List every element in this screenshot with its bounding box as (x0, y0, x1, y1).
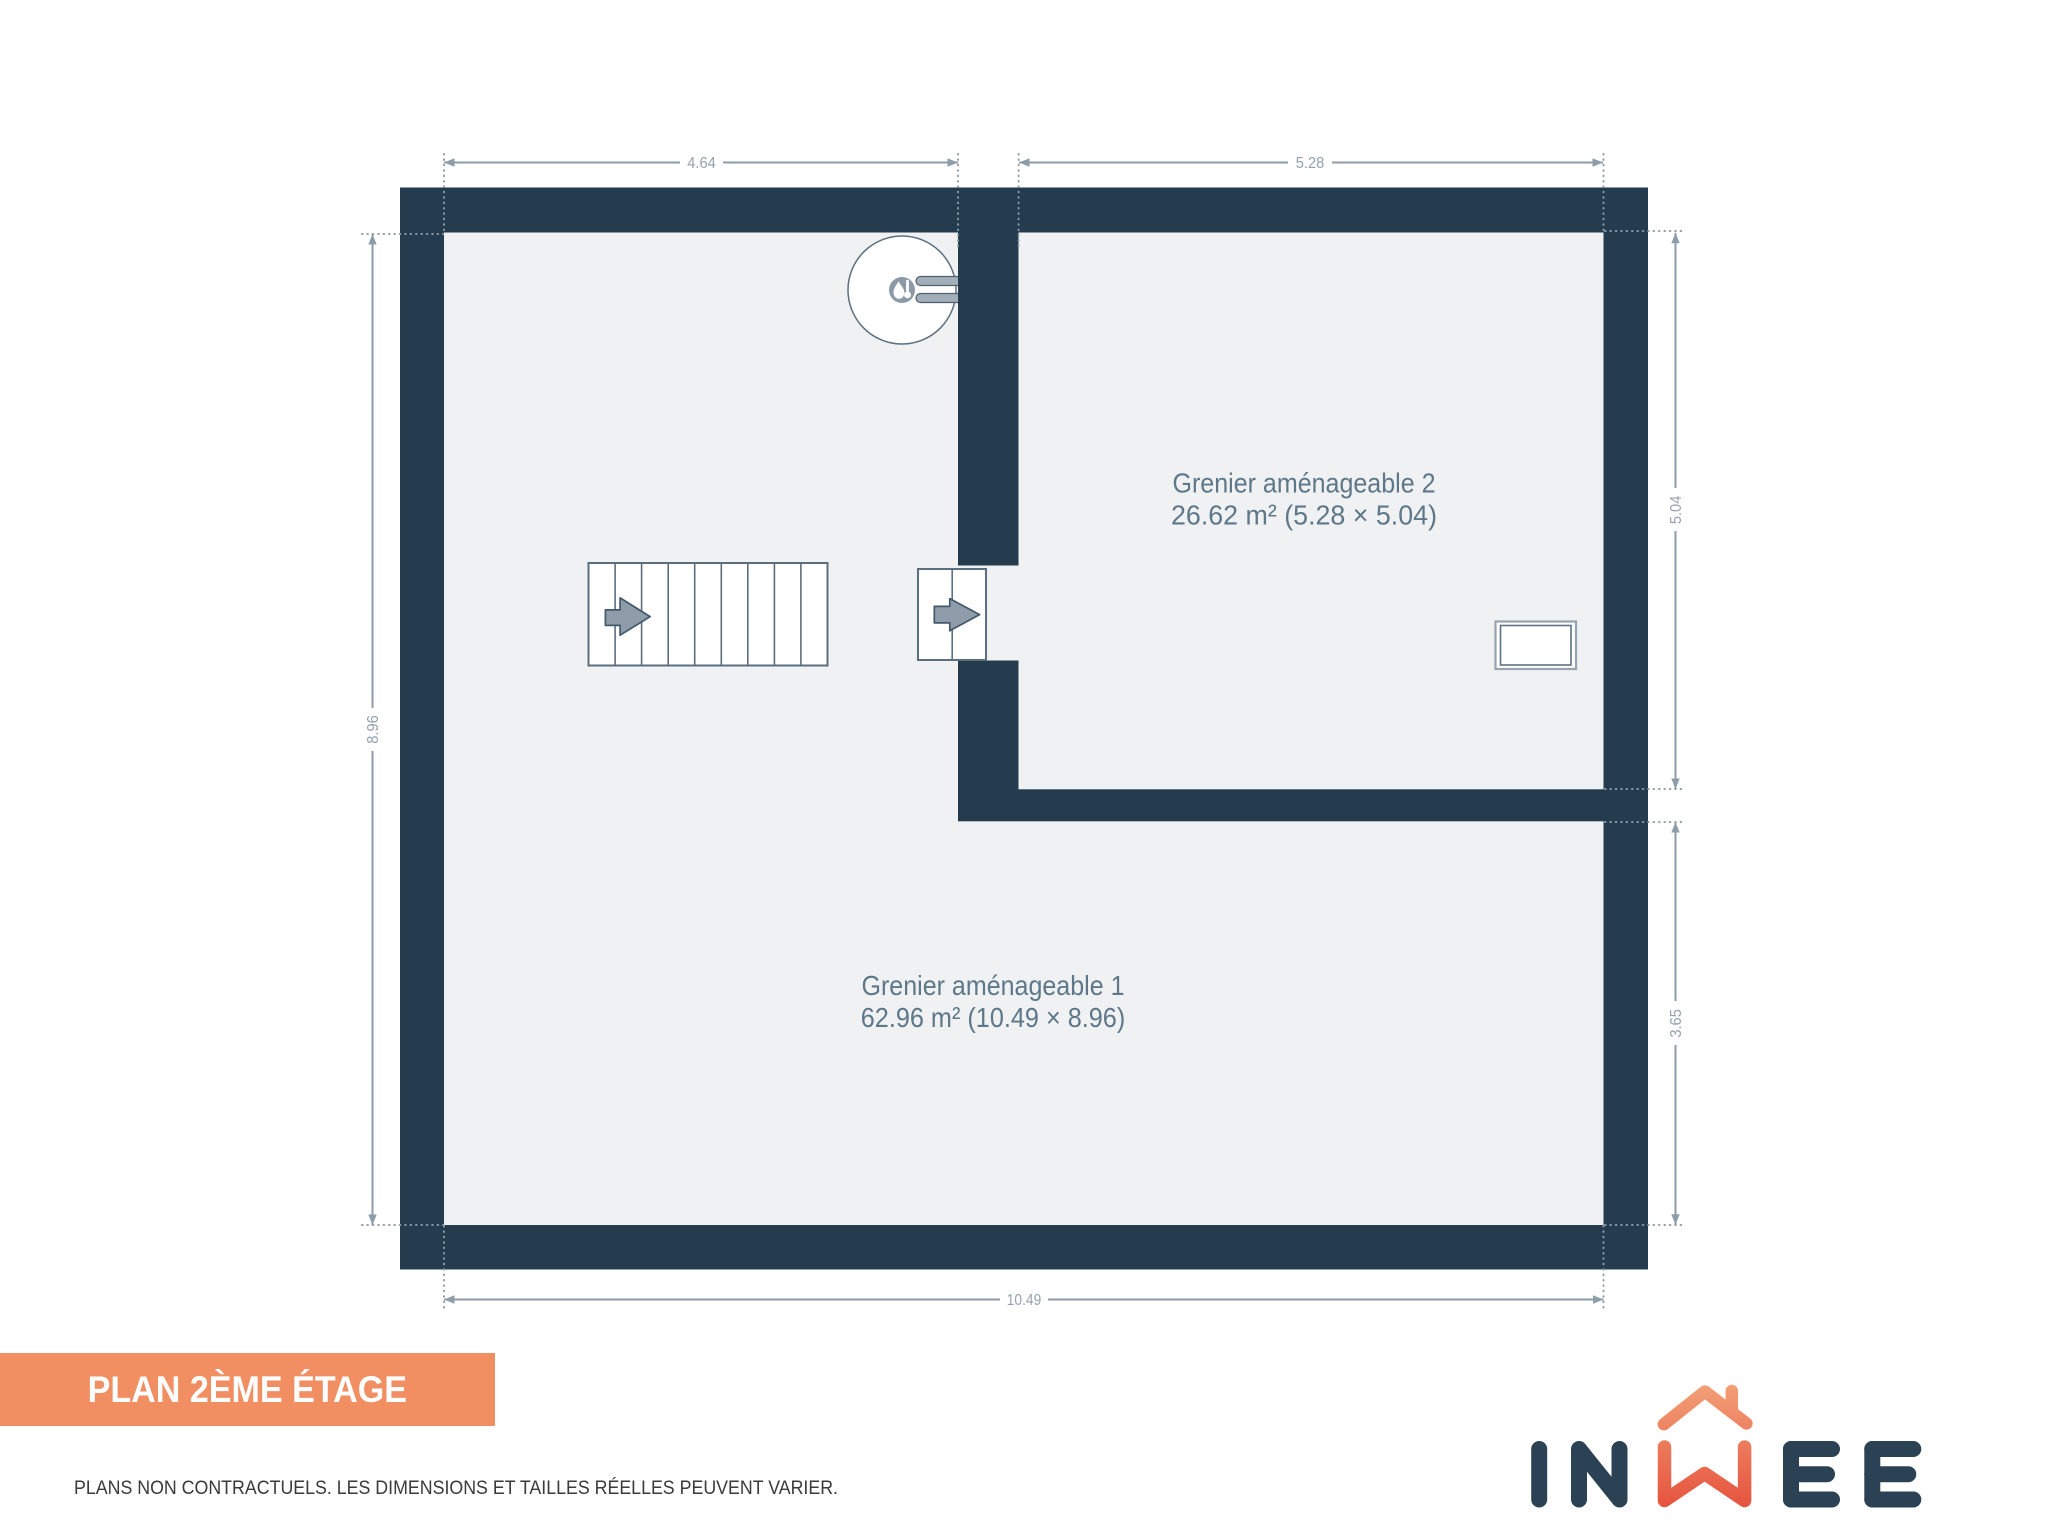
svg-text:62.96 m² (10.49 × 8.96): 62.96 m² (10.49 × 8.96) (861, 1002, 1126, 1033)
svg-text:10.49: 10.49 (1007, 1292, 1042, 1309)
svg-text:4.64: 4.64 (687, 155, 716, 172)
svg-text:Grenier aménageable 1: Grenier aménageable 1 (862, 970, 1125, 1001)
svg-text:PLAN 2ÈME ÉTAGE: PLAN 2ÈME ÉTAGE (88, 1369, 407, 1410)
svg-text:5.04: 5.04 (1668, 496, 1685, 525)
svg-text:5.28: 5.28 (1296, 155, 1325, 172)
svg-text:26.62 m² (5.28 × 5.04): 26.62 m² (5.28 × 5.04) (1171, 499, 1437, 530)
svg-text:PLANS NON CONTRACTUELS. LES DI: PLANS NON CONTRACTUELS. LES DIMENSIONS E… (74, 1476, 838, 1499)
svg-text:8.96: 8.96 (365, 715, 382, 744)
svg-text:Grenier aménageable 2: Grenier aménageable 2 (1173, 468, 1436, 499)
svg-text:3.65: 3.65 (1668, 1009, 1685, 1038)
